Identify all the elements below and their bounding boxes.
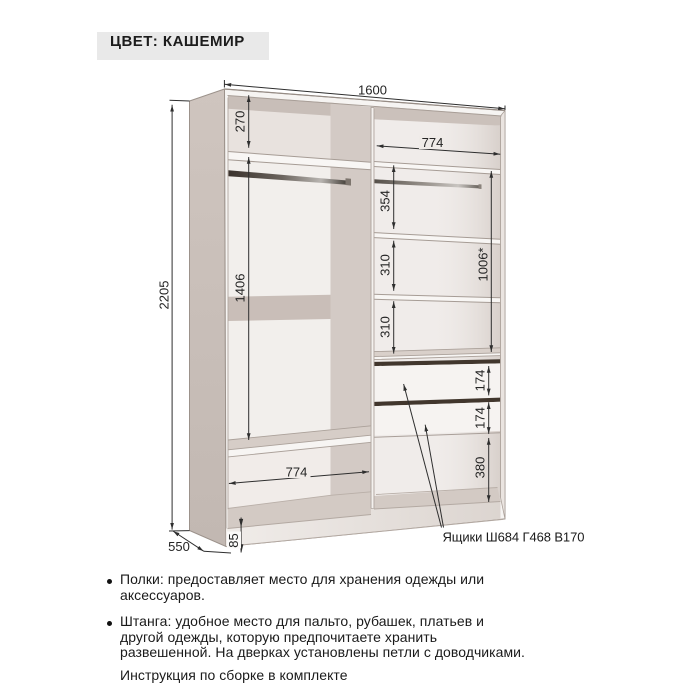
- svg-text:1406: 1406: [233, 274, 248, 303]
- svg-text:1006*: 1006*: [475, 248, 490, 282]
- svg-text:1600: 1600: [358, 83, 387, 98]
- svg-text:174: 174: [473, 407, 488, 429]
- svg-text:310: 310: [378, 316, 393, 338]
- svg-text:774: 774: [286, 465, 308, 480]
- svg-text:85: 85: [226, 533, 241, 547]
- svg-text:550: 550: [168, 539, 190, 554]
- svg-text:310: 310: [378, 254, 393, 276]
- svg-text:174: 174: [473, 370, 488, 392]
- svg-text:Ящики Ш684 Г468 В170: Ящики Ш684 Г468 В170: [443, 530, 585, 545]
- svg-text:774: 774: [422, 135, 444, 150]
- svg-text:270: 270: [233, 111, 248, 133]
- svg-text:2205: 2205: [156, 281, 171, 310]
- svg-text:380: 380: [473, 457, 488, 479]
- svg-text:354: 354: [378, 190, 393, 212]
